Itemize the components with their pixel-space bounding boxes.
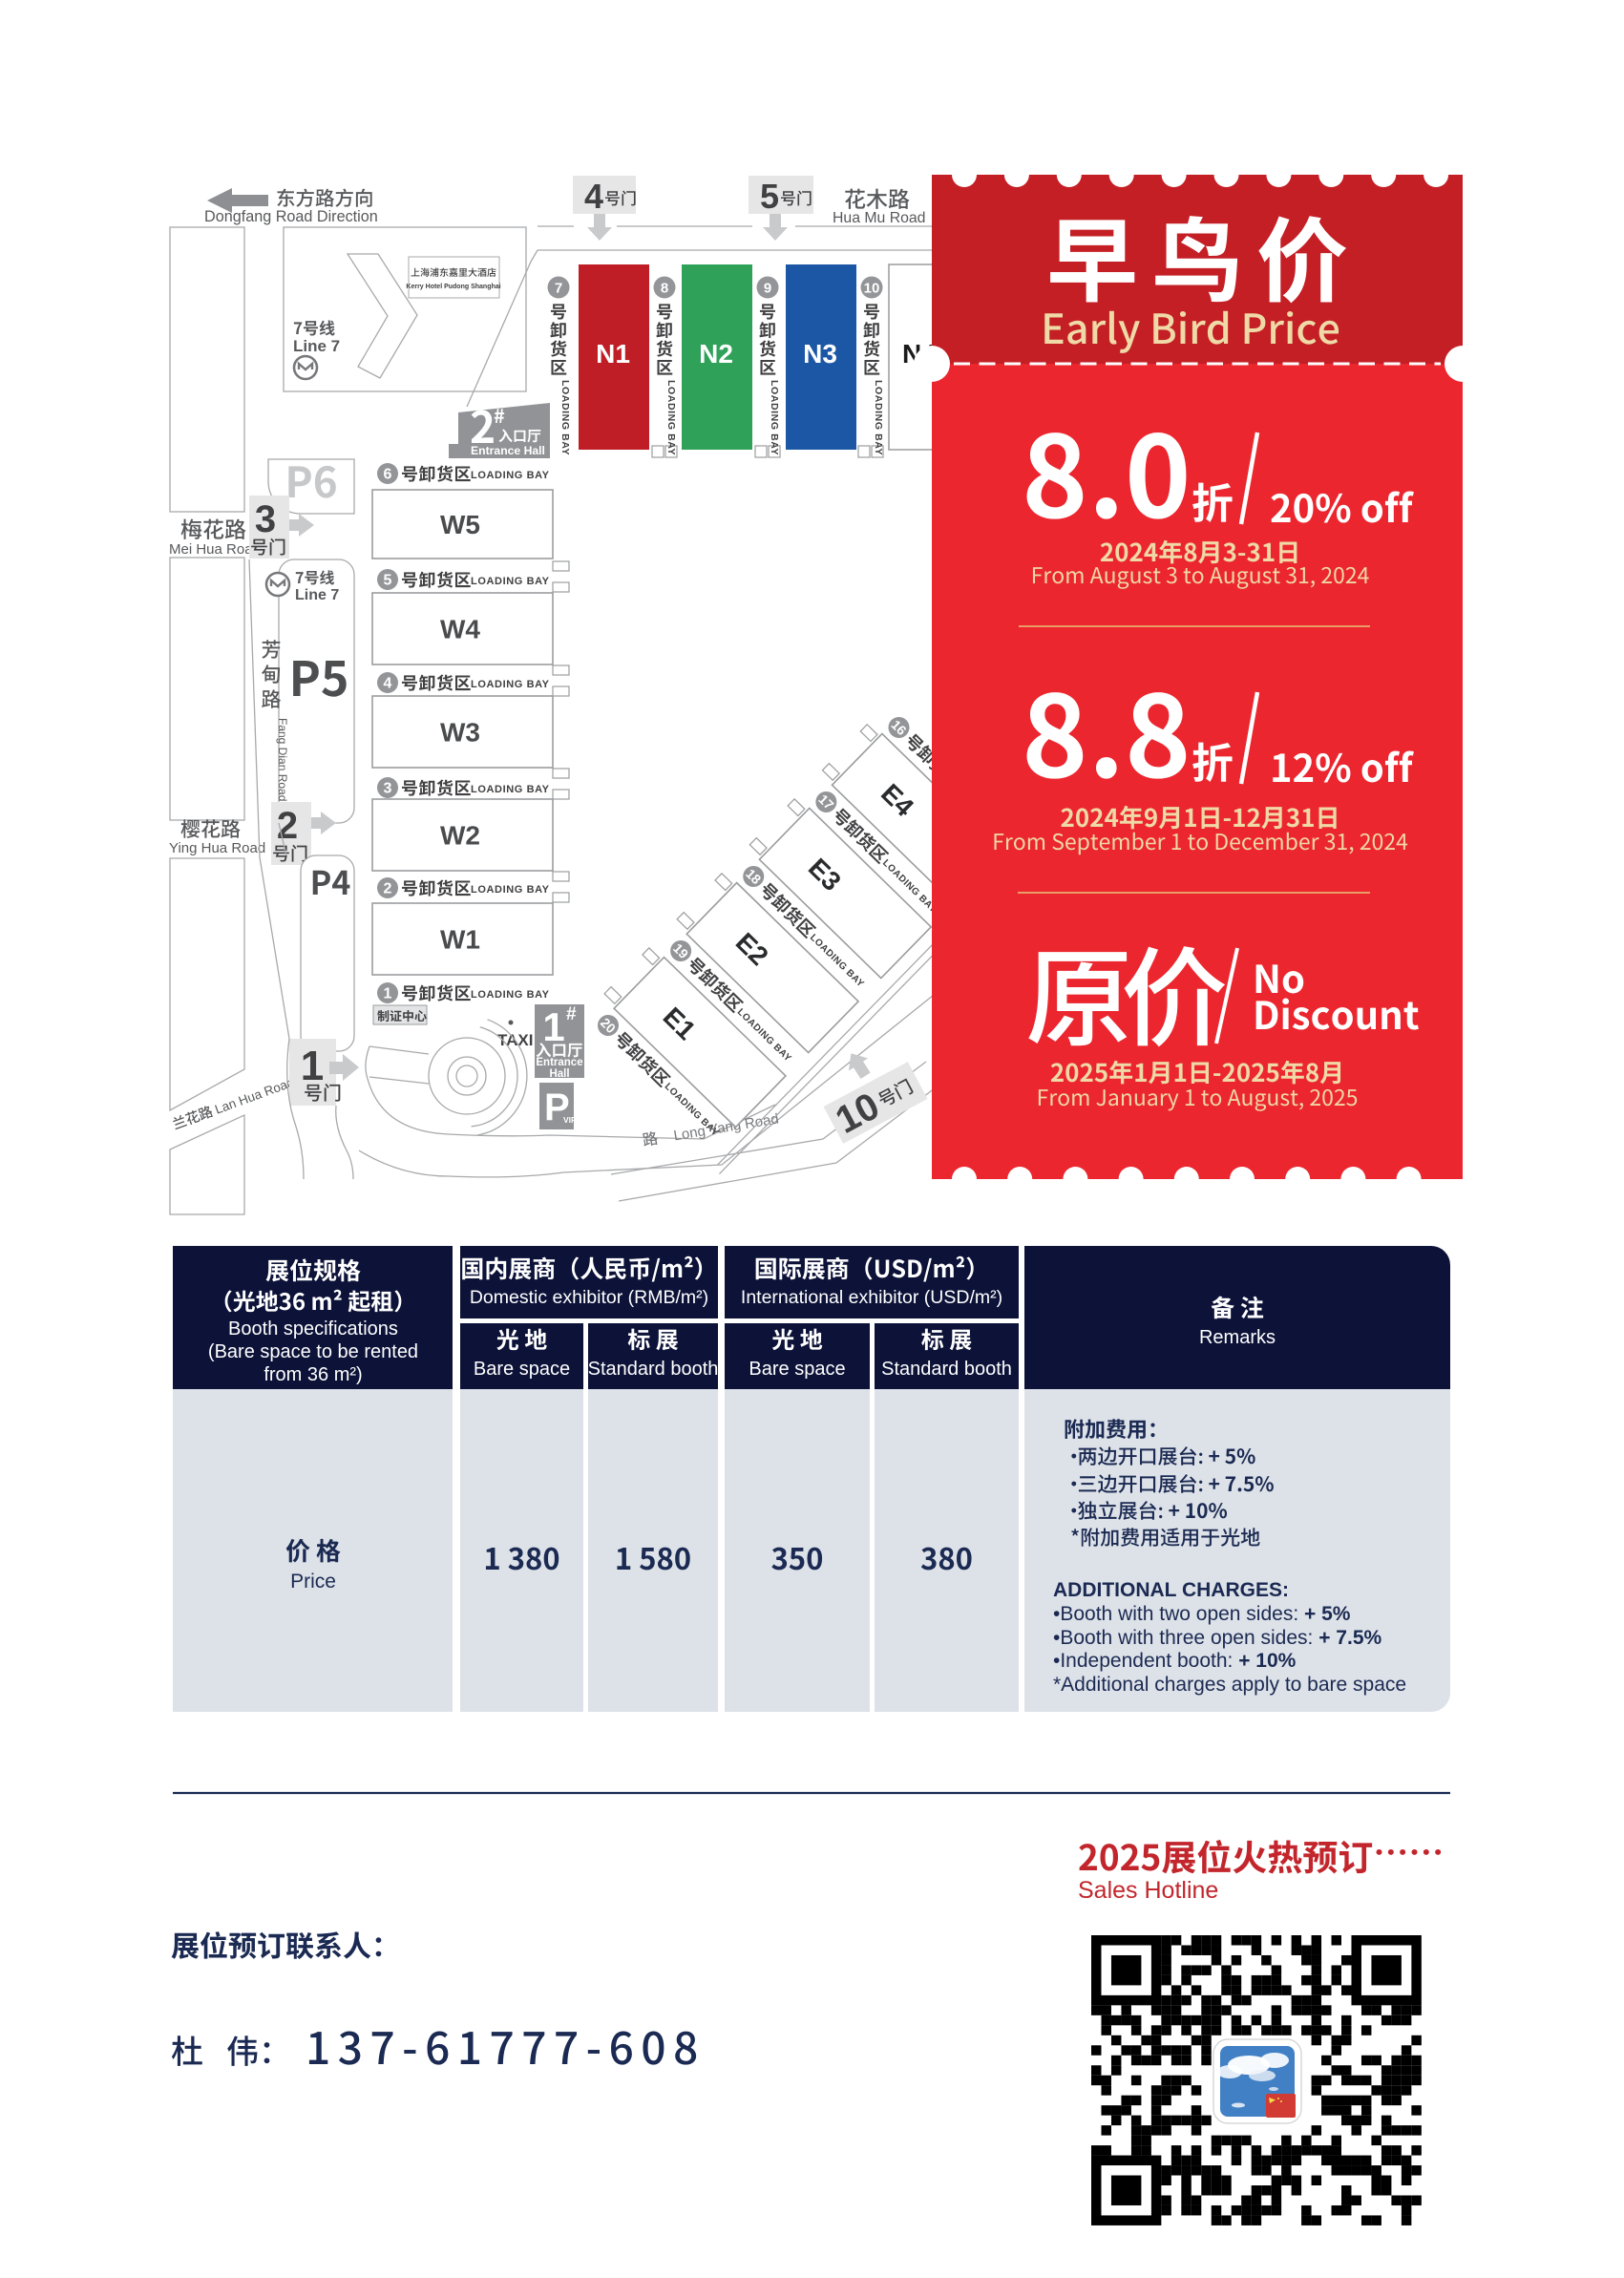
svg-text:Standard booth: Standard booth bbox=[881, 1359, 1012, 1380]
svg-text:LOADING BAY: LOADING BAY bbox=[471, 884, 550, 896]
svg-text:8: 8 bbox=[661, 281, 668, 297]
svg-text:Domestic exhibitor (RMB/m²): Domestic exhibitor (RMB/m²) bbox=[470, 1287, 708, 1308]
svg-text:LOADING BAY: LOADING BAY bbox=[471, 989, 550, 1001]
svg-text:20: 20 bbox=[598, 1015, 619, 1036]
svg-text:1: 1 bbox=[542, 1004, 564, 1049]
svg-text:International exhibitor (USD/m: International exhibitor (USD/m²) bbox=[741, 1287, 1002, 1308]
svg-text:10: 10 bbox=[864, 281, 880, 297]
svg-text:18: 18 bbox=[743, 866, 764, 887]
svg-text:•Booth with three open sides:: •Booth with three open sides: + 7.5% bbox=[1053, 1627, 1381, 1649]
svg-text:Remarks: Remarks bbox=[1199, 1327, 1276, 1348]
svg-text:17: 17 bbox=[815, 791, 836, 812]
svg-text:#: # bbox=[566, 1004, 577, 1024]
svg-text:Kerry Hotel Pudong Shanghai: Kerry Hotel Pudong Shanghai bbox=[406, 284, 500, 290]
svg-text:Bare space: Bare space bbox=[474, 1359, 570, 1380]
svg-text:LOADING BAY: LOADING BAY bbox=[471, 470, 550, 481]
svg-text:Hall: Hall bbox=[549, 1068, 569, 1080]
svg-text:Line 7: Line 7 bbox=[293, 337, 340, 355]
svg-text:*Additional charges apply to b: *Additional charges apply to bare space bbox=[1053, 1674, 1406, 1696]
svg-text:Lan Hua Road: Lan Hua Road bbox=[213, 1075, 296, 1117]
svg-text:3: 3 bbox=[384, 781, 392, 797]
svg-text:7: 7 bbox=[555, 281, 562, 297]
svg-text:N2: N2 bbox=[699, 339, 733, 369]
svg-text:5: 5 bbox=[384, 573, 392, 589]
svg-text:Dongfang Road Direction: Dongfang Road Direction bbox=[204, 208, 378, 225]
svg-text:19: 19 bbox=[670, 940, 691, 961]
svg-text:ADDITIONAL CHARGES:: ADDITIONAL CHARGES: bbox=[1053, 1579, 1289, 1601]
svg-text:W4: W4 bbox=[440, 615, 480, 644]
svg-text:LOADING BAY: LOADING BAY bbox=[471, 679, 550, 690]
svg-text:Standard booth: Standard booth bbox=[588, 1359, 719, 1380]
svg-text:LOADING BAY: LOADING BAY bbox=[559, 380, 571, 455]
svg-text:W2: W2 bbox=[440, 821, 480, 851]
svg-text:Sales Hotline: Sales Hotline bbox=[1078, 1877, 1218, 1904]
svg-text:VIP: VIP bbox=[563, 1115, 577, 1125]
svg-text:LOADING BAY: LOADING BAY bbox=[471, 576, 550, 587]
svg-text:2: 2 bbox=[384, 881, 392, 897]
svg-text:4: 4 bbox=[584, 177, 603, 216]
svg-text:Fang Dian Road: Fang Dian Road bbox=[276, 718, 289, 801]
svg-text:Booth specifications: Booth specifications bbox=[228, 1318, 398, 1339]
svg-text:W3: W3 bbox=[440, 718, 480, 748]
svg-text:LOADING BAY: LOADING BAY bbox=[665, 380, 677, 455]
svg-text:N1: N1 bbox=[596, 339, 630, 369]
svg-text:9: 9 bbox=[764, 281, 771, 297]
svg-text:(Bare space to be rented: (Bare space to be rented bbox=[208, 1341, 418, 1362]
svg-text:•Independent booth: + 10%: •Independent booth: + 10% bbox=[1053, 1650, 1297, 1672]
svg-text:16: 16 bbox=[888, 717, 909, 738]
svg-text:N3: N3 bbox=[803, 339, 837, 369]
svg-text:W1: W1 bbox=[440, 925, 480, 955]
svg-text:Mei Hua Road: Mei Hua Road bbox=[169, 541, 261, 558]
svg-text:4: 4 bbox=[384, 676, 392, 692]
svg-text:W5: W5 bbox=[440, 510, 480, 539]
svg-text:Entrance: Entrance bbox=[536, 1057, 582, 1068]
svg-text:Price: Price bbox=[290, 1571, 336, 1592]
svg-text:Ying Hua Road: Ying Hua Road bbox=[169, 840, 265, 856]
svg-text:1: 1 bbox=[384, 986, 392, 1002]
svg-text:LOADING BAY: LOADING BAY bbox=[769, 380, 780, 455]
svg-text:•Booth with two open sides: +: •Booth with two open sides: + 5% bbox=[1053, 1603, 1351, 1625]
svg-text:6: 6 bbox=[384, 467, 392, 483]
svg-text:Bare space: Bare space bbox=[749, 1359, 845, 1380]
svg-text:LOADING BAY: LOADING BAY bbox=[873, 380, 884, 455]
svg-text:LOADING BAY: LOADING BAY bbox=[471, 784, 550, 795]
svg-text:5: 5 bbox=[760, 177, 779, 216]
svg-text:Entrance Hall: Entrance Hall bbox=[471, 444, 545, 457]
svg-text:Hua Mu Road: Hua Mu Road bbox=[833, 210, 925, 226]
svg-text:1: 1 bbox=[301, 1043, 324, 1089]
svg-text:Line 7: Line 7 bbox=[295, 587, 339, 603]
svg-text:3: 3 bbox=[255, 498, 276, 540]
svg-text:from 36 m²): from 36 m²) bbox=[264, 1364, 362, 1385]
